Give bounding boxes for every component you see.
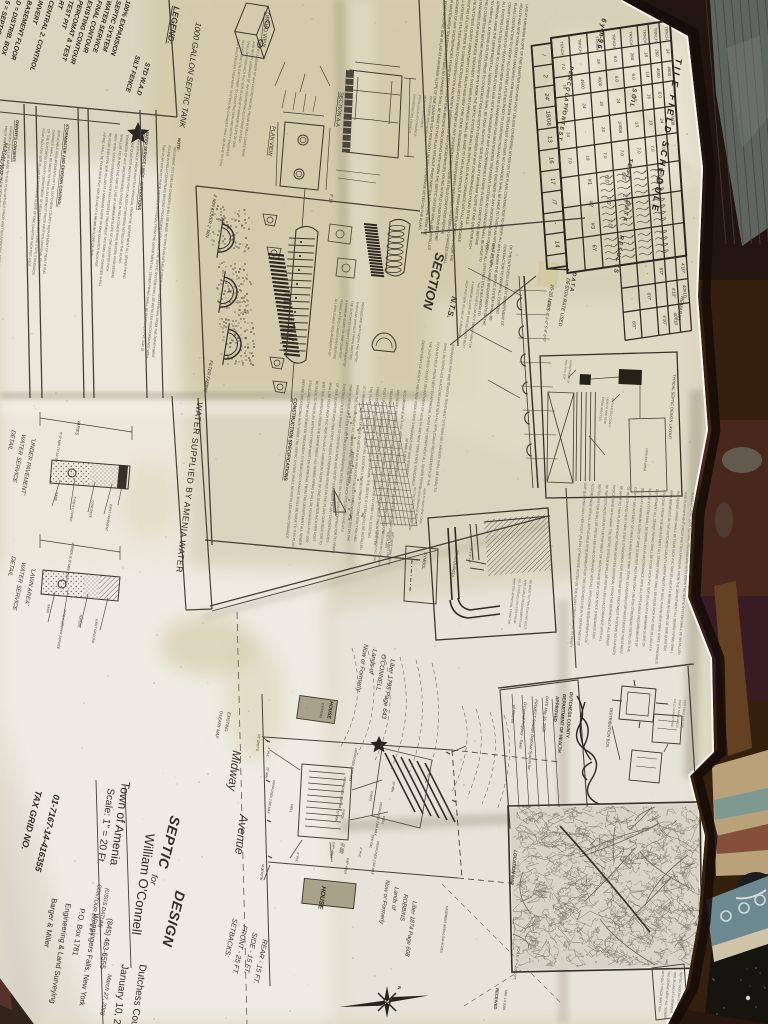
svg-text:6'0": 6'0"	[631, 321, 637, 330]
svg-text:6'0": 6'0"	[646, 292, 652, 301]
svg-text:TRNCH: TRNCH	[577, 39, 583, 54]
svg-text:4600: 4600	[656, 68, 662, 79]
svg-text:#1: #1	[586, 178, 592, 185]
svg-text:TRNCH: TRNCH	[611, 34, 617, 49]
svg-text:4600: 4600	[597, 76, 603, 87]
svg-text:4'10": 4'10"	[662, 315, 668, 326]
svg-text:TRNCH: TRNCH	[664, 26, 670, 41]
svg-text:4'10": 4'10"	[680, 263, 686, 274]
svg-text:18/08: 18/08	[544, 110, 551, 127]
svg-text:4'10": 4'10"	[671, 287, 677, 298]
svg-text:260: 260	[654, 48, 660, 58]
svg-text:260: 260	[630, 51, 636, 61]
svg-text:6'0": 6'0"	[659, 267, 665, 276]
svg-text:24': 24'	[543, 92, 550, 103]
svg-text:TRNCH: TRNCH	[642, 29, 648, 44]
svg-text:1/4/08: 1/4/08	[617, 120, 623, 133]
svg-text:N: N	[397, 986, 402, 990]
svg-text:TRNCH: TRNCH	[628, 31, 634, 46]
svg-text:4600: 4600	[580, 79, 586, 90]
svg-text:TRNCH: TRNCH	[559, 41, 565, 56]
svg-text:#2: #2	[587, 200, 593, 207]
svg-text:TRNCH: TRNCH	[653, 27, 659, 42]
svg-text:6Y: 6Y	[590, 244, 596, 252]
